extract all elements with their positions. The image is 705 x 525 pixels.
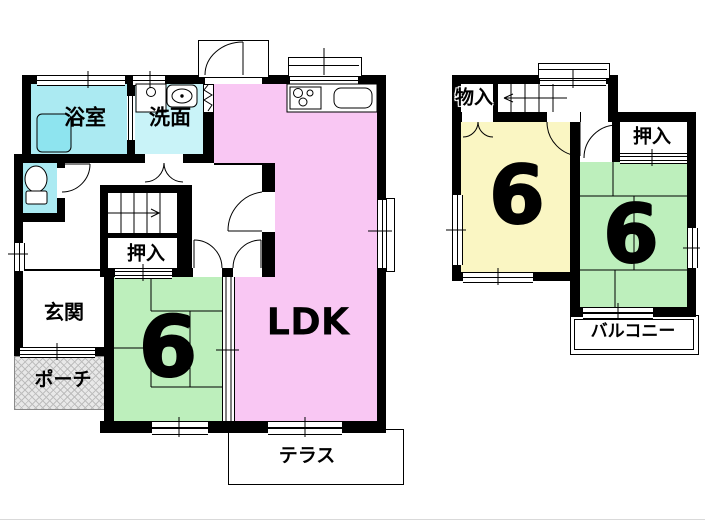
bottom-divider — [0, 519, 705, 520]
toilet-icon — [25, 166, 47, 192]
room-size-east-second-floor: 6 — [603, 195, 657, 275]
room-label-closet-second-floor: 押入 — [633, 128, 671, 147]
washroom-door-arc — [145, 163, 164, 182]
hall-door-arc — [233, 240, 261, 268]
east-room-door-arc — [584, 125, 617, 158]
room-label-closet-first-floor: 押入 — [127, 245, 165, 264]
room-label-storage: 物入 — [455, 89, 493, 108]
bathroom-fixtures — [25, 84, 197, 204]
room-label-porch: ポーチ — [34, 371, 91, 390]
room-label-terrace: テラス — [279, 447, 336, 466]
room-label-ldk: LDK — [267, 304, 350, 341]
accordion-door-symbol — [204, 85, 212, 111]
room-label-bathroom: 浴室 — [64, 108, 106, 129]
west-room-door-arc — [547, 122, 580, 156]
room-label-balcony: バルコニー — [591, 324, 676, 341]
kitchen-fixtures — [287, 84, 377, 112]
stairs-first-floor — [108, 193, 160, 233]
room-label-washroom: 洗面 — [149, 108, 191, 129]
washroom-door-arc — [164, 163, 183, 182]
ldk-door-arc — [228, 192, 262, 231]
sink-icon — [334, 88, 372, 108]
back-door-arc — [205, 42, 243, 75]
storage-door-arc — [463, 122, 478, 137]
hall-door-arc — [194, 240, 222, 268]
room-size-tatami-first-floor: 6 — [139, 305, 195, 389]
room-label-entrance: 玄関 — [44, 302, 84, 322]
storage-door-arc — [478, 122, 493, 137]
doors-first-floor — [62, 42, 262, 268]
plan-linework — [0, 0, 705, 525]
stairs-second-floor — [504, 84, 567, 112]
toilet-door-arc — [62, 164, 90, 192]
room-size-west-second-floor: 6 — [489, 156, 543, 236]
floor-plan-image: 浴室 洗面 LDK 6 押入 玄関 ポーチ テラス 物入 押入 6 6 バルコニ… — [0, 0, 705, 525]
